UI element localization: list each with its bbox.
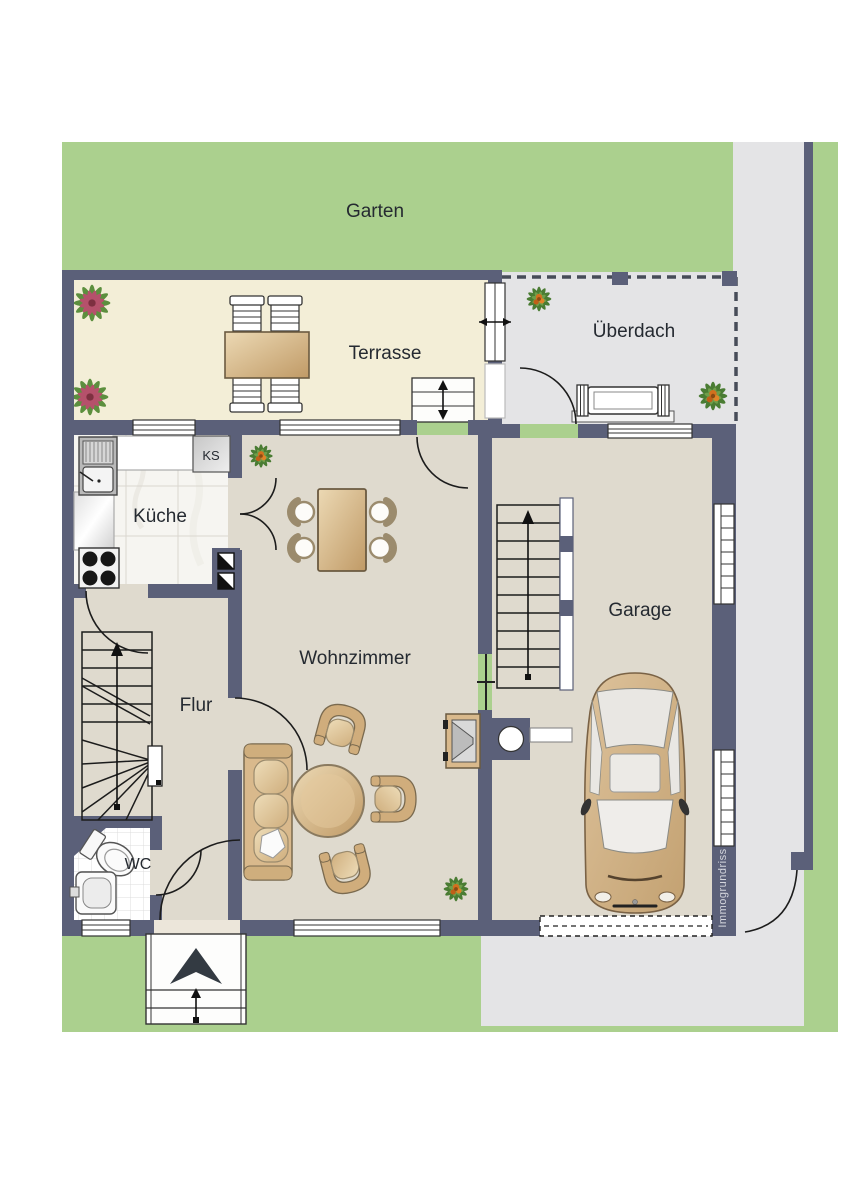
garage-top-window [608, 424, 692, 438]
floorplan-page: KS [0, 0, 848, 1200]
fridge-label: KS [202, 448, 220, 463]
fence-gate-post [791, 852, 813, 870]
kitchen-window [133, 420, 195, 435]
chimney-circle [499, 727, 524, 752]
boundary-fence [804, 142, 813, 856]
fridge-ks: KS [193, 436, 230, 472]
car-rear-window [597, 689, 673, 749]
watermark-text: Immogrundriss [717, 848, 729, 927]
ueberdach-area [502, 271, 737, 424]
kitchen-counter-left [74, 492, 114, 550]
dining-chair [290, 536, 314, 560]
label-garten: Garten [346, 201, 404, 222]
car [579, 673, 692, 913]
dining-chair [370, 536, 394, 560]
terrace-steps [412, 378, 474, 422]
label-terrasse: Terrasse [349, 343, 422, 364]
label-flur: Flur [180, 695, 213, 716]
wc-window [82, 920, 130, 936]
living-bottom-window [294, 920, 440, 936]
armchair [371, 776, 416, 822]
roof-post [722, 271, 737, 286]
kitchen-counter-top [113, 436, 193, 470]
garage-right-window-2 [714, 750, 734, 846]
terrace [70, 280, 488, 422]
garden-bench [572, 385, 674, 422]
garage-right-window [714, 504, 734, 604]
garage-door [540, 916, 712, 936]
living-top-window [280, 420, 400, 435]
wc-sink [70, 872, 116, 914]
label-ueberdach: Überdach [593, 321, 675, 342]
fireplace [443, 714, 480, 768]
car-windshield [597, 800, 673, 853]
label-wc: WC [125, 856, 152, 873]
dining-chair [370, 500, 394, 524]
label-kueche: Küche [133, 506, 187, 527]
understair-threshold [530, 728, 572, 742]
kitchen-sink [79, 437, 117, 495]
coffee-table-top [301, 774, 355, 828]
terrace-table [225, 332, 309, 378]
car-roof [610, 754, 660, 792]
floorplan-drawing: KS [0, 0, 848, 1200]
label-wohnzimmer: Wohnzimmer [299, 648, 411, 669]
stove [79, 548, 119, 588]
stair-railing [560, 498, 573, 690]
dining-table [318, 489, 366, 571]
entrance-stoop [146, 934, 246, 1024]
dining-chair [290, 500, 314, 524]
roof-post [612, 272, 628, 285]
sofa [244, 744, 292, 880]
label-garage: Garage [608, 600, 671, 621]
